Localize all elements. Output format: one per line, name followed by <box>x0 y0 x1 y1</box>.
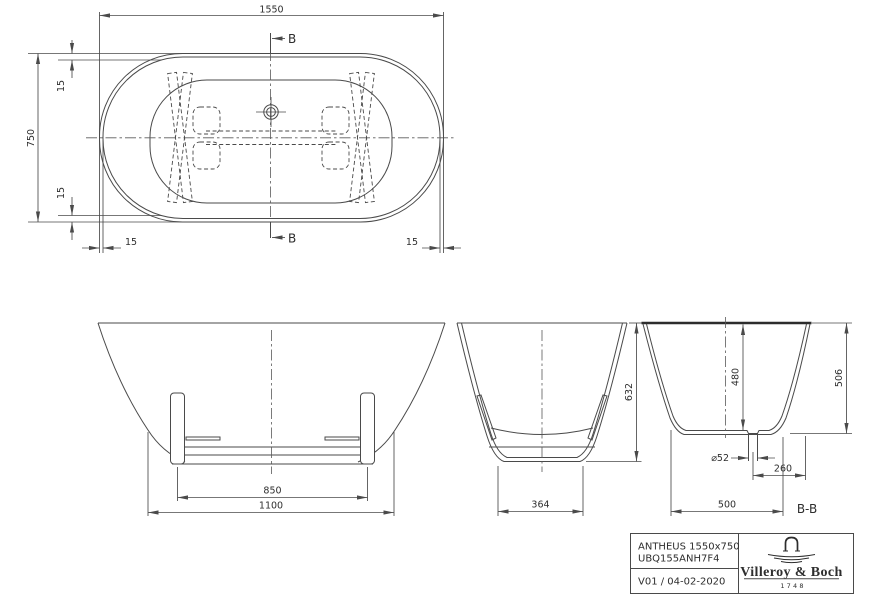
revision-date: V01 / 04-02-2020 <box>638 577 725 588</box>
section-marker-bottom: B <box>271 222 297 246</box>
section-bb-view: 480 506 ⌀52 260 500 B-B <box>642 317 853 516</box>
dim-364-label: 364 <box>531 500 549 511</box>
brand-name: Villeroy & Boch <box>740 565 842 580</box>
brand-year: 1748 <box>780 582 805 590</box>
dim-1100-label: 1100 <box>259 501 283 512</box>
section-marker-top: B <box>271 32 297 54</box>
article-code: UBQ155ANH7F4 <box>638 554 719 565</box>
logo-ripple-3 <box>781 562 802 563</box>
dim-506: 506 <box>790 323 852 434</box>
dim-15-left-label: 15 <box>125 237 137 248</box>
section-marker-top-label: B <box>288 32 296 46</box>
dim-drain-52: ⌀52 <box>711 453 775 464</box>
dim-506-label: 506 <box>834 369 845 387</box>
front-view: 850 1100 <box>98 323 445 516</box>
dim-drain-label: ⌀52 <box>711 453 729 464</box>
dim-1550-label: 1550 <box>259 5 283 16</box>
side-view: 632 364 <box>457 323 642 516</box>
title-block: ANTHEUS 1550x750 UBQ155ANH7F4 V01 / 04-0… <box>631 534 854 594</box>
logo-ripple-1 <box>768 555 815 557</box>
logo-ripple-2 <box>774 558 809 560</box>
technical-drawing-svg: 1550 750 15 15 15 <box>0 0 880 600</box>
dim-850: 850 <box>178 467 368 501</box>
leg-pad <box>322 142 349 169</box>
dim-850-label: 850 <box>263 486 281 497</box>
plan-view: 1550 750 15 15 15 <box>26 5 461 254</box>
product-name: ANTHEUS 1550x750 <box>638 542 740 553</box>
dim-15-right: 15 <box>406 237 461 248</box>
front-rail-cap-right <box>325 437 359 440</box>
dim-500: 500 <box>671 430 783 516</box>
dim-480: 480 <box>731 325 744 431</box>
leg-pad <box>193 142 220 169</box>
dim-15-left: 15 <box>82 237 137 248</box>
section-bb-label: B-B <box>797 502 817 516</box>
dim-632-label: 632 <box>624 383 635 401</box>
drawing-page: 1550 750 15 15 15 <box>0 0 880 600</box>
dim-364: 364 <box>498 466 583 516</box>
dim-500-label: 500 <box>718 500 736 511</box>
plan-drain <box>256 97 286 127</box>
villeroy-boch-logo-icon <box>768 538 815 563</box>
front-right-post <box>361 393 375 464</box>
leg-pad <box>322 107 349 134</box>
front-rail-cap-left <box>186 437 220 440</box>
logo-arch <box>786 538 798 552</box>
dim-15-bottom-label: 15 <box>56 187 67 199</box>
dim-480-label: 480 <box>731 368 742 386</box>
bb-outer-wall <box>643 324 810 435</box>
leg-pad <box>193 107 220 134</box>
section-marker-bottom-label: B <box>288 232 296 246</box>
dim-15-right-label: 15 <box>406 237 418 248</box>
dim-750-label: 750 <box>26 129 37 147</box>
dim-632: 632 <box>586 323 642 462</box>
front-left-post <box>171 393 185 464</box>
bb-inner-wall <box>647 324 807 434</box>
dim-15-top-label: 15 <box>56 80 67 92</box>
